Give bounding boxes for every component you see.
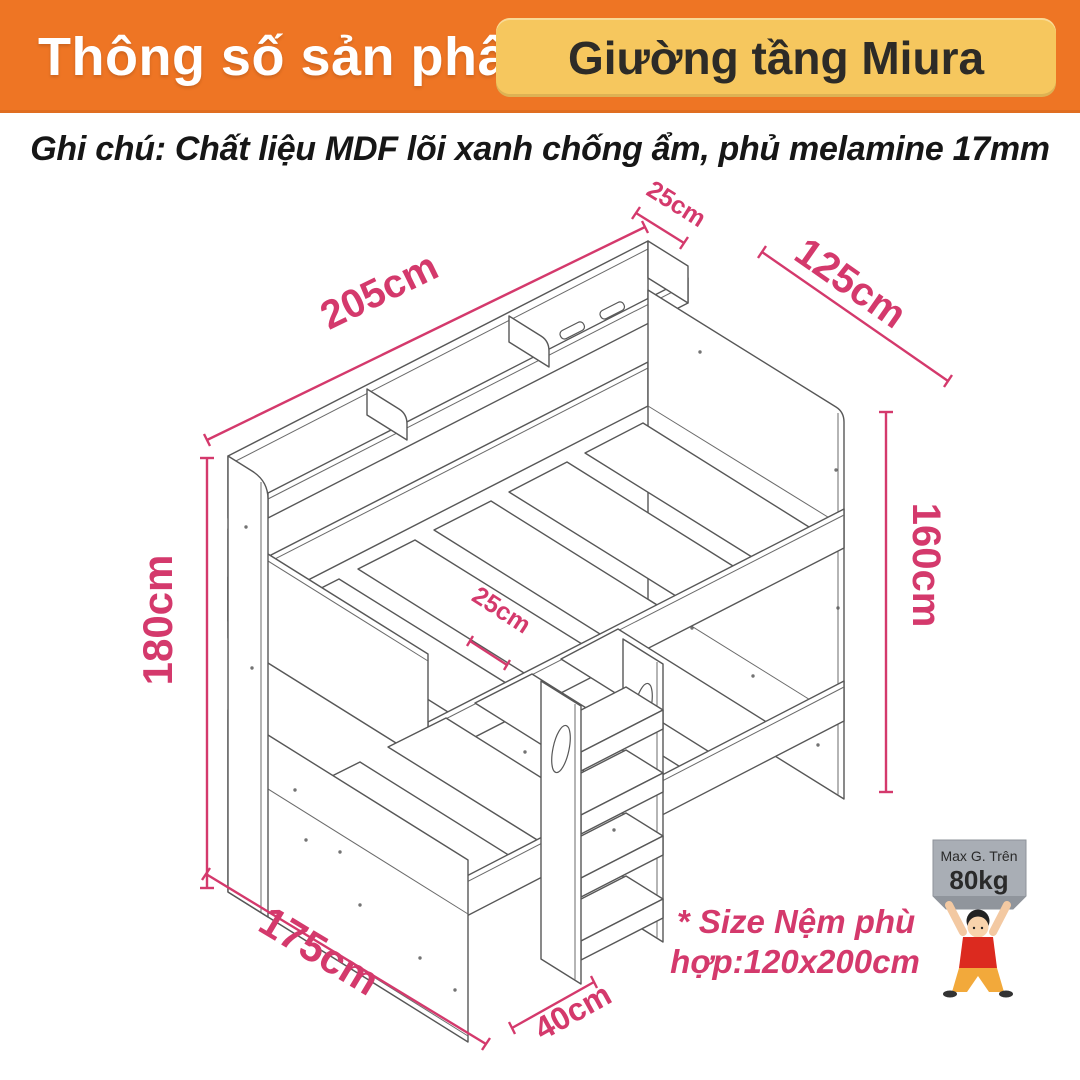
dim-height-left: 180cm <box>134 458 214 888</box>
product-name: Giường tầng Miura <box>568 31 984 85</box>
dim-label-height-right: 160cm <box>904 503 948 628</box>
material-note: Ghi chú: Chất liệu MDF lõi xanh chống ẩm… <box>0 130 1080 169</box>
weight-block-icon: Max G. Trên 80kg <box>933 840 1026 909</box>
header-bar: Thông số sản phẩm Giường tầng Miura <box>0 0 1080 113</box>
product-name-badge: Giường tầng Miura <box>496 18 1056 97</box>
left-head-post <box>228 456 268 917</box>
dim-label-ladder-width: 40cm <box>528 976 617 1047</box>
dim-ladder-width: 40cm <box>509 976 617 1047</box>
mattress-note-line2: hợp:120x200cm <box>670 943 920 980</box>
dim-shelf-depth: 25cm <box>632 175 711 249</box>
page-title: Thông số sản phẩm <box>38 26 557 88</box>
mattress-size-note: * Size Nệm phù hợp:120x200cm <box>670 903 920 980</box>
dim-label-height-left: 180cm <box>134 555 181 686</box>
weight-limit-value: 80kg <box>949 865 1008 895</box>
dim-label-length: 205cm <box>314 244 445 338</box>
weight-limit-label: Max G. Trên <box>940 848 1017 864</box>
weightlifter-icon <box>943 905 1013 998</box>
mattress-note-line1: * Size Nệm phù <box>677 903 915 940</box>
dim-width: 125cm <box>758 230 952 387</box>
dim-height-right: 160cm <box>879 412 948 792</box>
weight-limit-icon: Max G. Trên 80kg <box>933 840 1026 998</box>
